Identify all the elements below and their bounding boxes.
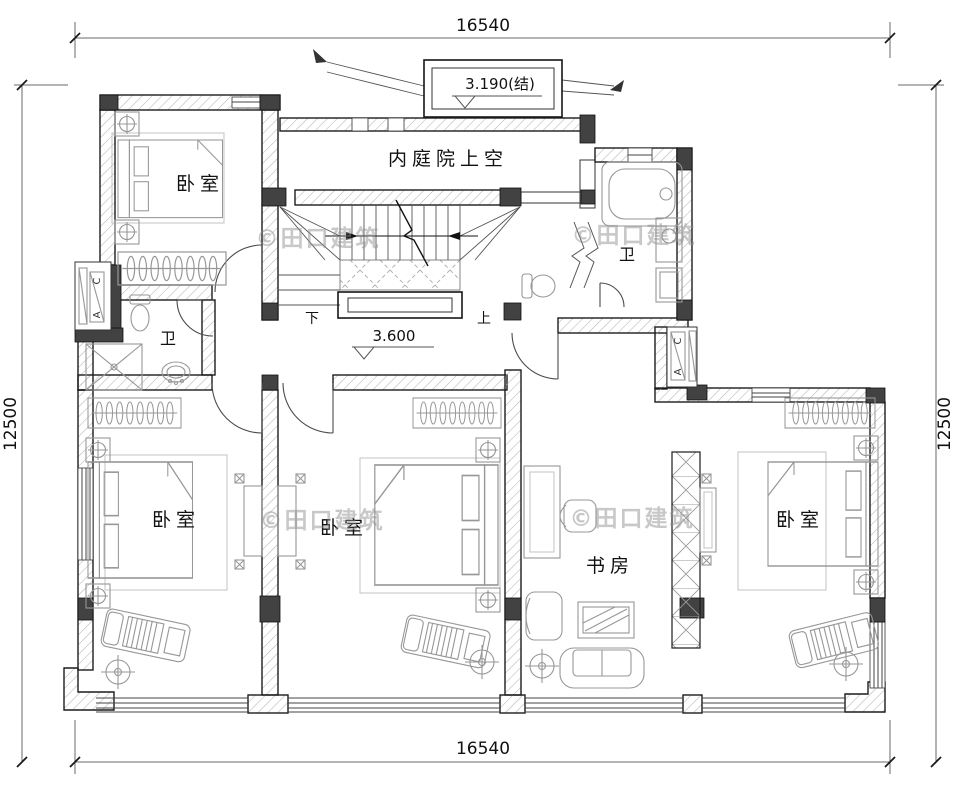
stair-landing-hatch bbox=[340, 260, 460, 290]
elevation-triangle-floor bbox=[354, 347, 374, 359]
door-bedroom-bottom-left bbox=[212, 383, 262, 433]
window-right-wall bbox=[870, 622, 885, 688]
door-bedroom-middle bbox=[283, 383, 333, 433]
bookshelf bbox=[672, 452, 700, 648]
window-right-wing-top bbox=[752, 388, 790, 402]
watermark-4: ©田口建筑 bbox=[570, 505, 695, 532]
watermark-1: ©田口建筑 bbox=[256, 225, 381, 252]
watermark-2: ©田口建筑 bbox=[572, 222, 697, 249]
window-left-wall bbox=[78, 468, 93, 560]
label-courtyard: 内庭院上空 bbox=[388, 148, 508, 170]
dim-top: 16540 bbox=[456, 16, 510, 36]
elevation-triangle-roof bbox=[455, 96, 475, 108]
roof-elevation-label: 3.190(结) bbox=[465, 75, 535, 93]
door-wc bbox=[600, 283, 624, 307]
floor-elevation-label: 3.600 bbox=[373, 327, 416, 345]
roof-break-arrow-left bbox=[313, 49, 327, 63]
room-labels: 内庭院上空 卧室 卫 卫 卧室 卧室 书房 卧室 bbox=[152, 148, 824, 577]
ac-platform-right: C A bbox=[667, 327, 697, 387]
ac-platform-left: C A bbox=[75, 262, 111, 330]
floor-plan-canvas: 16540 16540 12500 12500 3.190(结) bbox=[0, 0, 960, 800]
window-bath-right bbox=[628, 148, 652, 162]
window-top-bedroom bbox=[232, 97, 260, 108]
stair-up-label: 上 bbox=[477, 311, 491, 327]
dim-left: 12500 bbox=[1, 397, 21, 451]
stair-down-label: 下 bbox=[305, 311, 319, 327]
roof-elevation-box: 3.190(结) bbox=[313, 49, 624, 117]
ac-left-c-label: C bbox=[92, 277, 103, 284]
toilet-right bbox=[522, 274, 555, 298]
label-bath-left: 卫 bbox=[160, 329, 176, 348]
dim-bottom: 16540 bbox=[456, 739, 510, 759]
ac-right-a-label: A bbox=[673, 368, 684, 375]
watermark-3: ©田口建筑 bbox=[260, 507, 385, 534]
window-band-bottom bbox=[96, 698, 845, 712]
floor-plan-drawing: 16540 16540 12500 12500 3.190(结) bbox=[0, 0, 960, 800]
staircase: 下 上 bbox=[278, 200, 520, 327]
stair-well-opening bbox=[338, 292, 462, 318]
ac-left-a-label: A bbox=[92, 311, 103, 318]
label-bedroom-top-left: 卧室 bbox=[176, 173, 224, 195]
bathtub bbox=[602, 162, 682, 226]
dim-right: 12500 bbox=[935, 397, 955, 451]
label-bedroom-bottom-right: 卧室 bbox=[776, 509, 824, 531]
ac-right-c-label: C bbox=[673, 337, 684, 344]
label-bedroom-bottom-left: 卧室 bbox=[152, 509, 200, 531]
label-study: 书房 bbox=[586, 555, 634, 577]
stair-arrow-right bbox=[448, 232, 460, 240]
floor-elevation-marker: 3.600 bbox=[352, 327, 434, 359]
